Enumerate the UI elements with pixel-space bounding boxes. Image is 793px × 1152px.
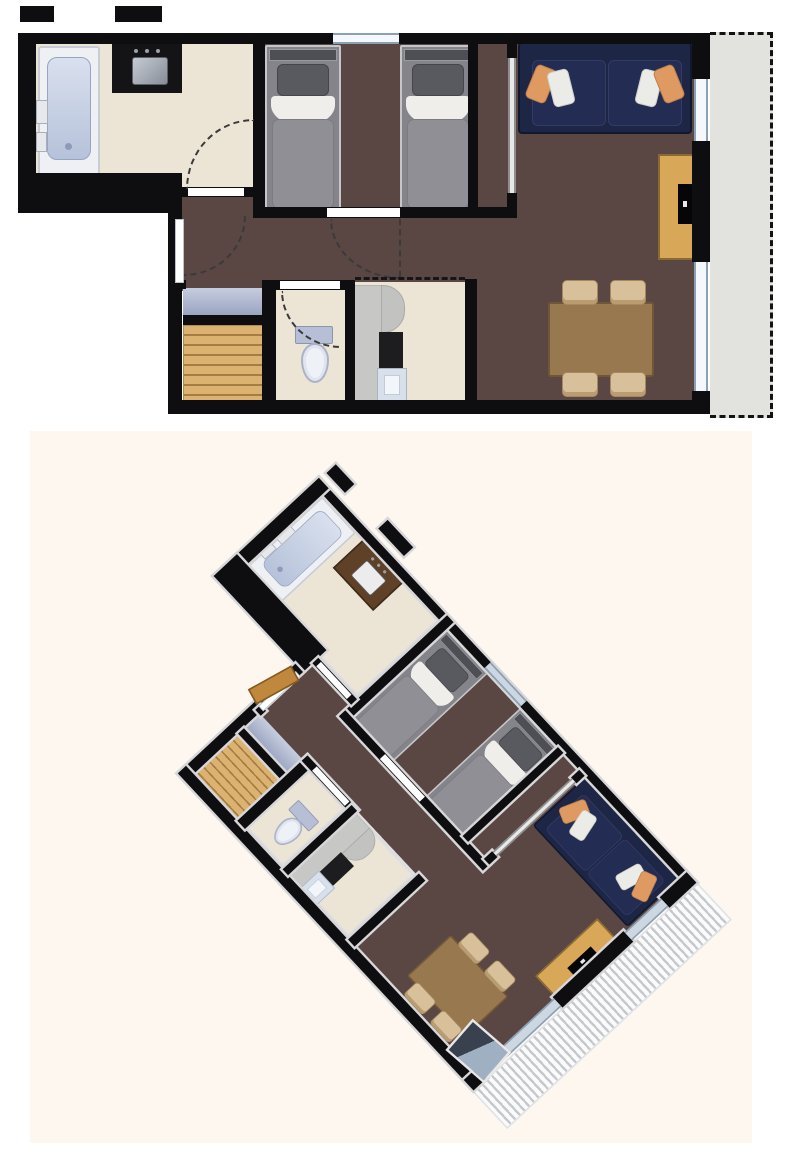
dining-table xyxy=(548,302,654,377)
living-window-lower xyxy=(694,262,708,391)
bedroom-door-opening xyxy=(327,208,400,217)
vanity-sink xyxy=(132,57,168,85)
entry-door-leaf xyxy=(175,219,184,283)
wall-kitchen-living xyxy=(465,279,477,400)
kitchen-cooktop xyxy=(379,332,403,368)
wall-right-pier-mid xyxy=(692,141,710,262)
vanity xyxy=(112,43,182,93)
faucet-dot xyxy=(145,49,149,53)
wall-bedroom-living xyxy=(468,44,478,207)
faucet-dot xyxy=(370,557,375,562)
wall-entry-wc xyxy=(262,282,276,400)
wall-right-pier-bottom xyxy=(692,391,710,414)
wall-shaft-tab xyxy=(115,6,162,22)
floor-plan-2d xyxy=(18,10,775,418)
wall-right-pier-top xyxy=(692,33,710,79)
kitchen-sink xyxy=(377,368,407,402)
wall-bottom xyxy=(168,400,710,414)
bed-headboard xyxy=(404,49,472,61)
entry-stairs xyxy=(183,325,264,402)
bathtub xyxy=(38,46,100,178)
bed-pillow xyxy=(412,64,464,96)
single-bed-right xyxy=(400,45,476,215)
entry-step-edge xyxy=(183,315,262,325)
wc-door-opening xyxy=(280,281,340,289)
dining-chair xyxy=(610,280,646,305)
bed-duvet xyxy=(407,119,469,209)
wall-wc-kitchen xyxy=(345,282,355,400)
bed-headboard xyxy=(269,49,337,61)
glazing-pier-top xyxy=(507,44,517,58)
dining-chair xyxy=(610,372,646,397)
single-bed-left xyxy=(265,45,341,215)
vanity-sink xyxy=(351,560,387,596)
tv-logo-dot xyxy=(580,959,586,965)
faucet-dot xyxy=(134,49,138,53)
sofa xyxy=(518,42,692,134)
tv xyxy=(678,184,692,224)
bed-duvet xyxy=(272,119,334,209)
wall-bath-bottom-chunk xyxy=(18,173,182,213)
bedroom-window xyxy=(333,33,399,44)
wall-shaft-tab xyxy=(20,6,54,22)
kitchen-open-boundary-dash xyxy=(355,277,465,283)
faucet-dot xyxy=(156,49,160,53)
faucet-dot xyxy=(382,570,387,575)
glazing-pier-bottom xyxy=(507,193,517,207)
bedroom-door-leaf-line xyxy=(399,219,403,277)
balcony-floor xyxy=(710,32,773,418)
entry-doormat xyxy=(183,288,262,316)
bed-pillow xyxy=(277,64,329,96)
dining-chair xyxy=(562,280,598,305)
glazed-partition xyxy=(508,58,516,193)
bathroom-door-opening xyxy=(188,188,244,196)
living-window-upper xyxy=(694,79,708,141)
bathtub-faucet xyxy=(36,100,48,124)
bathtub-handle xyxy=(36,132,47,152)
dining-chair xyxy=(562,372,598,397)
bathtub-drain xyxy=(65,143,72,150)
wall-bath-bedroom xyxy=(253,33,265,213)
page: { "document": { "kind": "apartment floor… xyxy=(0,0,793,1152)
kitchen-sink-basin xyxy=(307,879,327,899)
kitchen-sink-basin xyxy=(384,375,400,395)
tv-logo-dot xyxy=(683,201,687,207)
faucet-dot xyxy=(376,563,381,568)
